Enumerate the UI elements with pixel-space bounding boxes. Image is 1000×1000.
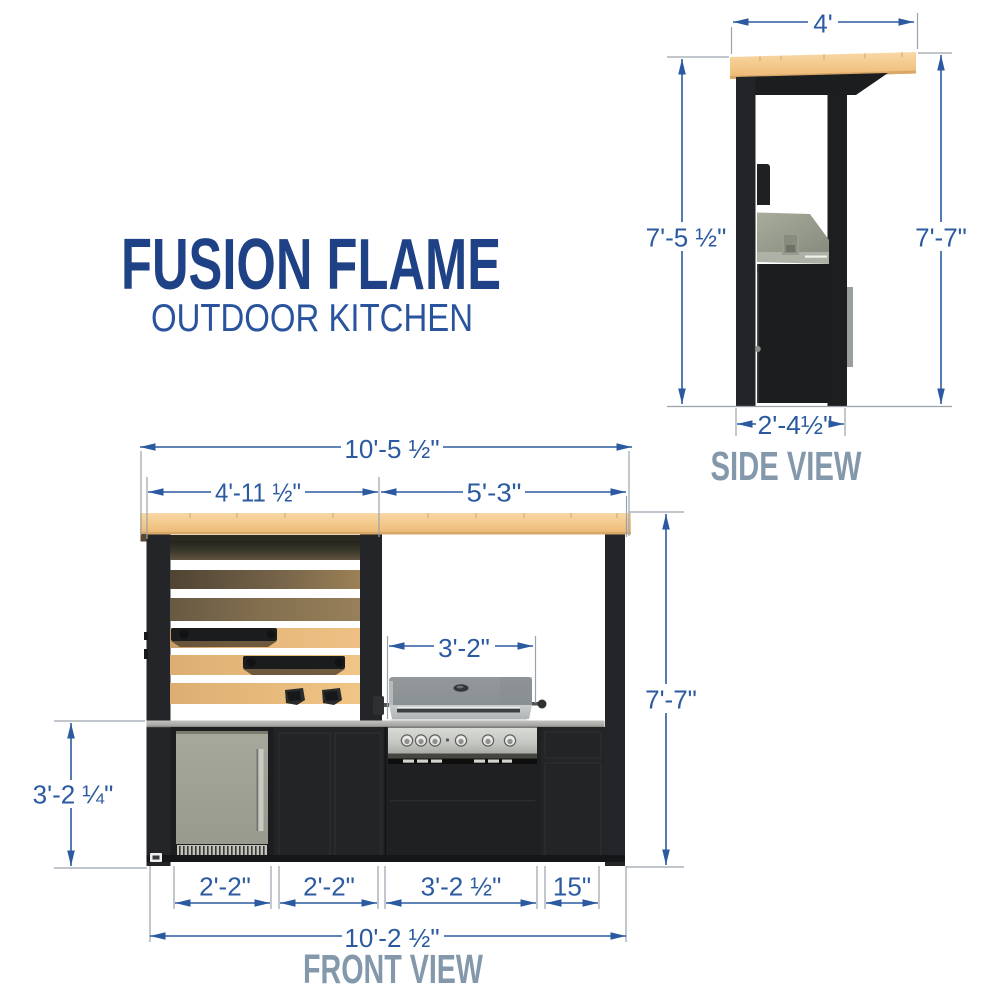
svg-text:7'-5 ½": 7'-5 ½" [646,223,727,253]
svg-text:2'-2": 2'-2" [199,872,251,902]
svg-text:3'-2": 3'-2" [438,633,490,663]
svg-text:FUSION FLAME: FUSION FLAME [121,225,501,305]
svg-text:7'-7": 7'-7" [645,685,697,715]
svg-text:3'-2 ¼": 3'-2 ¼" [33,780,114,810]
svg-text:7'-7": 7'-7" [915,223,967,253]
svg-text:2'-4½": 2'-4½" [758,410,833,440]
svg-text:4'-11 ½": 4'-11 ½" [215,478,301,508]
svg-text:OUTDOOR KITCHEN: OUTDOOR KITCHEN [151,297,473,340]
svg-text:2'-2": 2'-2" [303,872,355,902]
svg-text:FRONT VIEW: FRONT VIEW [303,946,483,992]
svg-text:SIDE VIEW: SIDE VIEW [711,443,862,489]
svg-text:15": 15" [553,872,591,902]
svg-text:3'-2 ½": 3'-2 ½" [421,872,502,902]
svg-text:10'-5 ½": 10'-5 ½" [344,434,439,464]
svg-text:4': 4' [813,8,832,38]
svg-text:5'-3": 5'-3" [467,478,522,508]
